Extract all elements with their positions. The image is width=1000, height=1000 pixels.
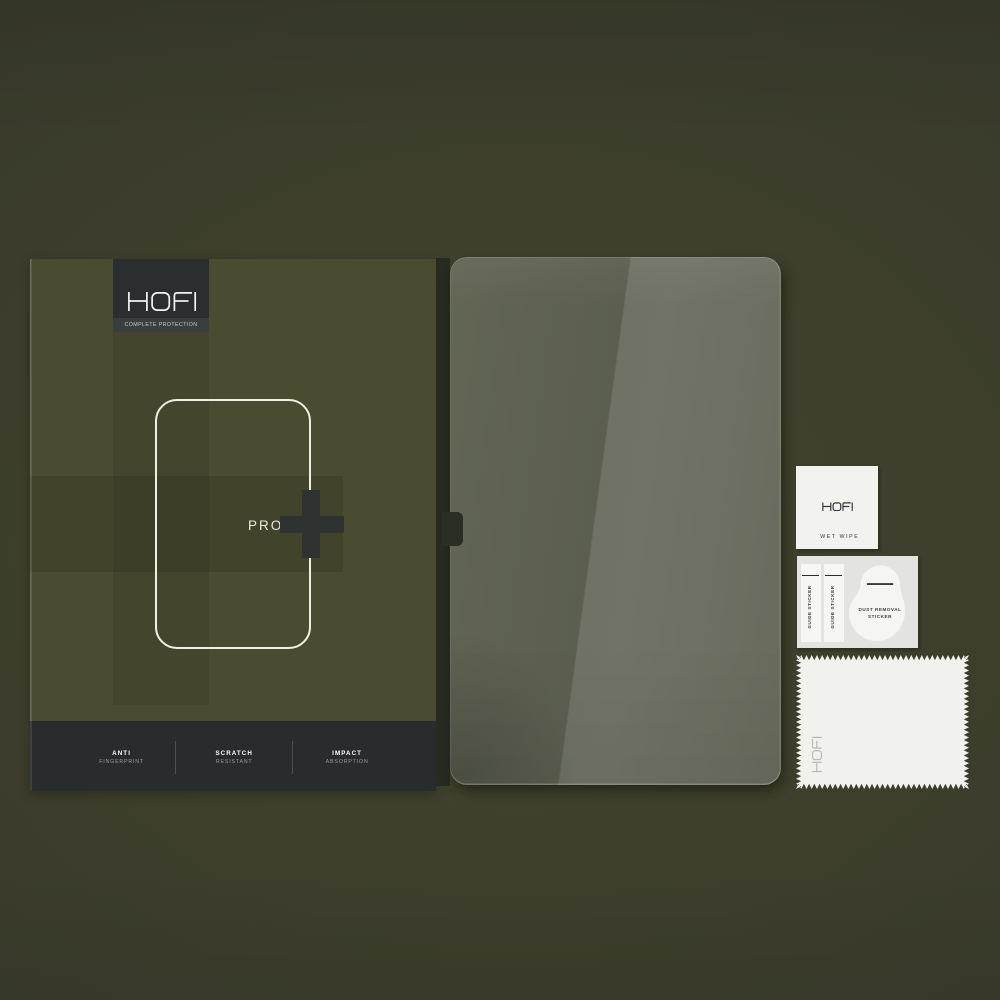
svg-text:STICKER: STICKER	[868, 614, 892, 619]
svg-text:DUST REMOVAL: DUST REMOVAL	[858, 607, 901, 612]
